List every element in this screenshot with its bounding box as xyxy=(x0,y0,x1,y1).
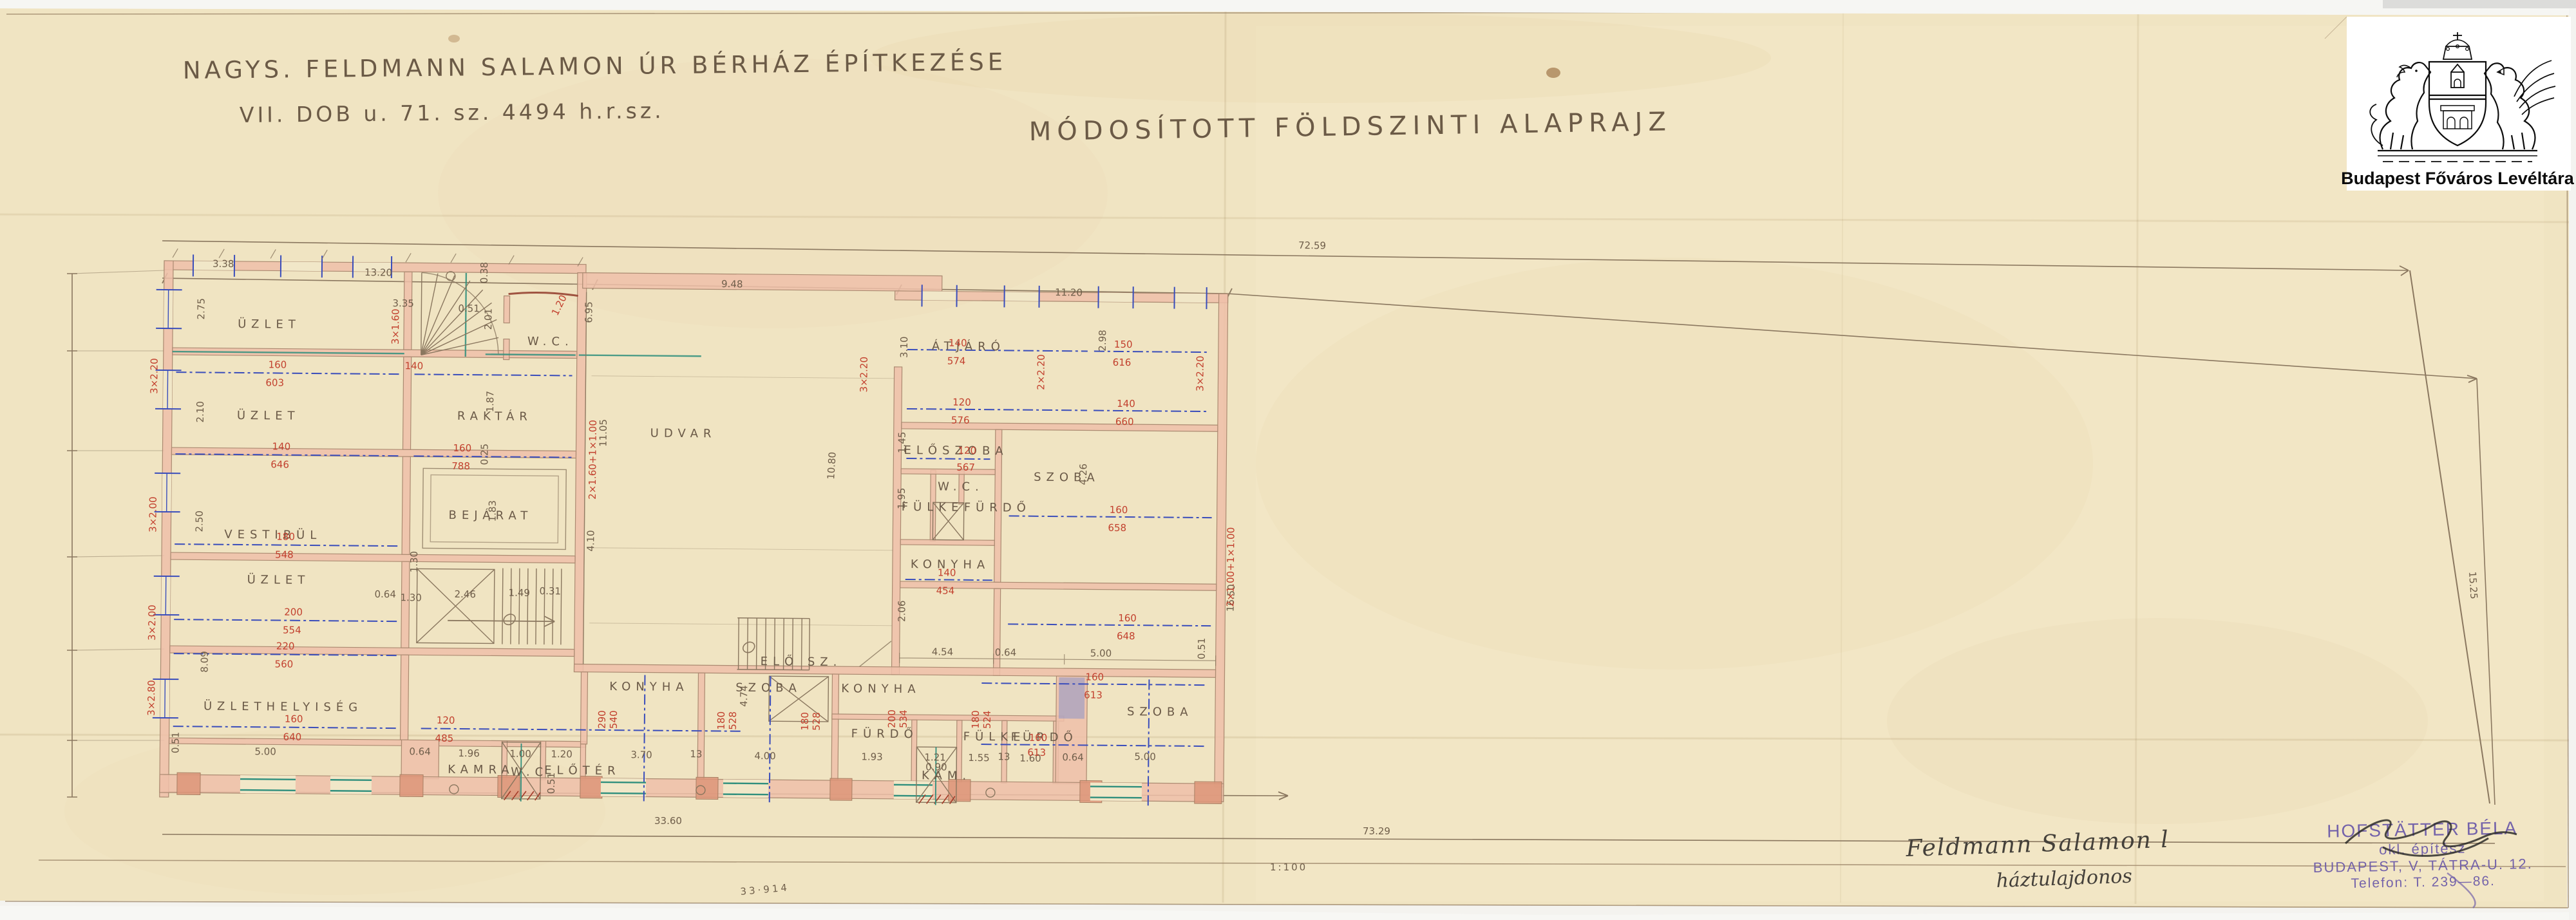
dimension-label: 1.30 xyxy=(408,551,420,573)
red-dimension-label: 2×1.00+1×1.00 xyxy=(1224,527,1236,607)
dimension-label: 6.95 xyxy=(583,301,594,323)
red-dimension-label: 613 xyxy=(1027,747,1046,758)
dimension-label: 1.95 xyxy=(896,487,907,509)
dimension-label: 4.74 xyxy=(738,685,750,707)
dimension-label: 0.51 xyxy=(545,773,557,794)
red-dimension-label: 160 xyxy=(269,359,287,370)
red-dimension-label: 160 xyxy=(453,442,471,454)
red-dimension-label: 528 xyxy=(811,712,822,731)
red-dimension-label: 603 xyxy=(265,377,284,388)
dimension-label: 1.55 xyxy=(968,752,990,764)
room-label: ELŐ SZ. xyxy=(761,654,842,669)
dimension-label: 2.50 xyxy=(193,511,205,532)
red-dimension-label: 560 xyxy=(275,658,294,670)
archive-name: Budapest Főváros Levéltára xyxy=(2341,169,2575,188)
dimension-label: 2.75 xyxy=(195,298,207,320)
dimension-label: 4.00 xyxy=(754,750,776,762)
archive-watermark: Budapest Főváros Levéltára xyxy=(2325,17,2575,191)
room-label: ÜZLET xyxy=(238,317,301,332)
dimension-label: 0.64 xyxy=(1062,751,1084,763)
room-label: KONYHA xyxy=(841,682,920,696)
red-dimension-label: 290 xyxy=(596,710,608,729)
scale-label: 1:100 xyxy=(1270,861,1307,873)
red-dimension-label: 616 xyxy=(1113,357,1132,368)
red-dimension-label: 160 xyxy=(1118,612,1137,624)
red-dimension-label: 567 xyxy=(956,462,975,473)
room-label: VESTIBÜL xyxy=(224,527,321,542)
red-dimension-label: 220 xyxy=(276,640,295,652)
room-label: UDVAR xyxy=(650,427,717,441)
red-dimension-label: 554 xyxy=(283,624,301,636)
dimension-label: 2.01 xyxy=(482,308,494,330)
red-dimension-label: 140 xyxy=(1117,398,1135,409)
red-dimension-label: 613 xyxy=(1084,689,1103,700)
floor-plan-drawing: NAGYS. FELDMANN SALAMON ÚR BÉRHÁZ ÉPÍTKE… xyxy=(0,0,2576,920)
dimension-label: 0.64 xyxy=(374,588,396,600)
boundary-dimension-label: 15.25 xyxy=(2467,571,2480,599)
dimension-label: 0.64 xyxy=(995,646,1017,658)
dimension-label: 1.49 xyxy=(508,587,530,599)
red-dimension-label: 574 xyxy=(947,355,966,367)
red-dimension-label: 200 xyxy=(284,606,303,618)
dimension-label: 1.30 xyxy=(400,592,422,603)
stamp-name: HOFSTÄTTER BÉLA xyxy=(2327,818,2518,841)
red-dimension-label: 120 xyxy=(437,715,455,726)
dimension-label: 0.38 xyxy=(478,262,490,284)
dimension-label: 5.00 xyxy=(1090,648,1112,659)
dimension-label: 13 xyxy=(998,751,1010,762)
red-dimension-label: 646 xyxy=(270,458,289,470)
room-label: ÜZLETHELYISÉG xyxy=(204,699,363,715)
red-dimension-label: 120 xyxy=(958,445,976,456)
dimension-label: 1.00 xyxy=(509,748,531,760)
red-dimension-label: 3×2.20 xyxy=(148,358,160,394)
room-label: SZOBA xyxy=(1127,705,1193,719)
dimension-label: 3.38 xyxy=(213,258,234,270)
red-dimension-label: 120 xyxy=(952,397,971,408)
room-label: KONYHA xyxy=(609,680,688,694)
room-label: ELŐSZOBA xyxy=(904,443,1008,458)
dimension-label: 0.64 xyxy=(409,746,431,757)
stamp-phone: Telefon: T. 239—86. xyxy=(2351,874,2495,891)
red-dimension-label: 648 xyxy=(1117,630,1135,642)
dimension-label: 0.90 xyxy=(925,761,947,773)
boundary-dimension-label: 13.20 xyxy=(365,267,392,279)
dimension-label: 3.35 xyxy=(392,297,414,309)
dimension-label: 1.96 xyxy=(458,747,480,759)
room-label: ÜZLET xyxy=(247,572,310,587)
boundary-dimension-label: 72.59 xyxy=(1298,239,1326,252)
room-label: SZOBA xyxy=(1034,471,1100,485)
dimension-label: 2.98 xyxy=(1097,330,1108,352)
dimension-label: 2.46 xyxy=(454,588,476,600)
room-label: ÜZLET xyxy=(237,408,300,423)
boundary-dimension-label: 11.20 xyxy=(1055,286,1083,299)
boundary-dimension-label: 9.48 xyxy=(721,278,743,290)
scanned-blueprint-sheet: NAGYS. FELDMANN SALAMON ÚR BÉRHÁZ ÉPÍTKE… xyxy=(0,0,2576,920)
dimension-label: 1.83 xyxy=(487,500,498,522)
signature-role: háztulajdonos xyxy=(1996,865,2132,892)
room-label: FÜRDŐ xyxy=(964,500,1031,515)
room-label: W.C. xyxy=(527,335,574,349)
project-address: VII. DOB u. 71. sz. 4494 h.r.sz. xyxy=(240,98,665,127)
red-dimension-label: 485 xyxy=(435,733,454,744)
dimension-label: 5.00 xyxy=(1134,751,1156,762)
red-dimension-label: 160 xyxy=(1085,671,1104,682)
red-dimension-label: 180 xyxy=(799,712,811,731)
red-dimension-label: 528 xyxy=(727,711,739,730)
dimension-label: 0.25 xyxy=(478,444,490,465)
red-dimension-label: 180 xyxy=(276,530,295,542)
boundary-dimension-label: 33.60 xyxy=(654,815,682,827)
red-dimension-label: 140 xyxy=(938,567,956,578)
red-dimension-label: 200 xyxy=(886,709,898,728)
dimension-label: 0.51 xyxy=(169,732,181,754)
red-dimension-label: 3×2.20 xyxy=(1194,355,1206,391)
red-dimension-label: 160 xyxy=(1110,504,1128,516)
dimension-label: 13 xyxy=(690,748,702,760)
red-dimension-label: 140 xyxy=(949,337,967,349)
red-dimension-label: 3×2.00 xyxy=(146,605,158,641)
red-dimension-label: 660 xyxy=(1115,416,1134,427)
red-dimension-label: 180 xyxy=(970,710,981,729)
dimension-label: 8.09 xyxy=(198,651,210,673)
dimension-label: 0.51 xyxy=(1196,638,1207,660)
dimension-label: 4.54 xyxy=(932,646,954,657)
dimension-label: 1.93 xyxy=(861,751,883,762)
room-label: KAMRA xyxy=(448,763,515,777)
red-dimension-label: 454 xyxy=(936,585,955,596)
red-dimension-label: 534 xyxy=(898,709,909,728)
red-dimension-label: 140 xyxy=(272,440,290,452)
dimension-label: 3.70 xyxy=(630,749,652,760)
dimension-label: 4.26 xyxy=(1077,464,1089,485)
dimension-label: 1.45 xyxy=(896,431,907,453)
red-dimension-label: 3×2.80 xyxy=(146,680,157,716)
dimension-label: 5.00 xyxy=(254,746,276,757)
red-dimension-label: 140 xyxy=(405,360,424,371)
boundary-dimension-label: 73.29 xyxy=(1363,825,1390,837)
dimension-label: 11.05 xyxy=(598,419,609,447)
red-dimension-label: 180 xyxy=(715,711,727,730)
red-dimension-label: 658 xyxy=(1108,522,1126,534)
red-dimension-label: 576 xyxy=(951,415,970,426)
dimension-label: 0.31 xyxy=(540,585,562,597)
red-dimension-label: 160 xyxy=(285,713,303,725)
red-dimension-label: 160 xyxy=(1029,732,1048,744)
room-label: FÜLKE xyxy=(902,500,964,514)
dimension-label: 0.51 xyxy=(458,303,480,314)
red-dimension-label: 548 xyxy=(275,549,294,560)
dimension-label: 4.10 xyxy=(585,530,596,552)
dimension-label: 3.10 xyxy=(898,337,910,359)
red-dimension-label: 2×2.20 xyxy=(1035,354,1046,390)
red-dimension-label: 788 xyxy=(451,460,470,472)
dimension-label: 1.20 xyxy=(551,748,573,760)
room-label: ÁTJÁRÓ xyxy=(932,339,1005,353)
red-dimension-label: 540 xyxy=(608,710,620,729)
red-dimension-label: 150 xyxy=(1114,339,1133,350)
dimension-label: 2.06 xyxy=(896,600,907,622)
red-dimension-label: 524 xyxy=(981,710,993,729)
dimension-label: 2.10 xyxy=(194,401,206,423)
room-label: W.C. xyxy=(938,480,984,494)
red-dimension-label: 640 xyxy=(283,731,302,743)
red-dimension-label: 3×1.60 xyxy=(390,309,401,345)
red-dimension-label: 3×2.00 xyxy=(147,496,158,532)
red-dimension-label: 2×1.60+1×1.00 xyxy=(587,420,599,500)
red-dimension-label: 3×2.20 xyxy=(858,357,869,393)
dimension-label: 1.87 xyxy=(484,391,496,413)
dimension-label: 10.80 xyxy=(825,451,838,480)
